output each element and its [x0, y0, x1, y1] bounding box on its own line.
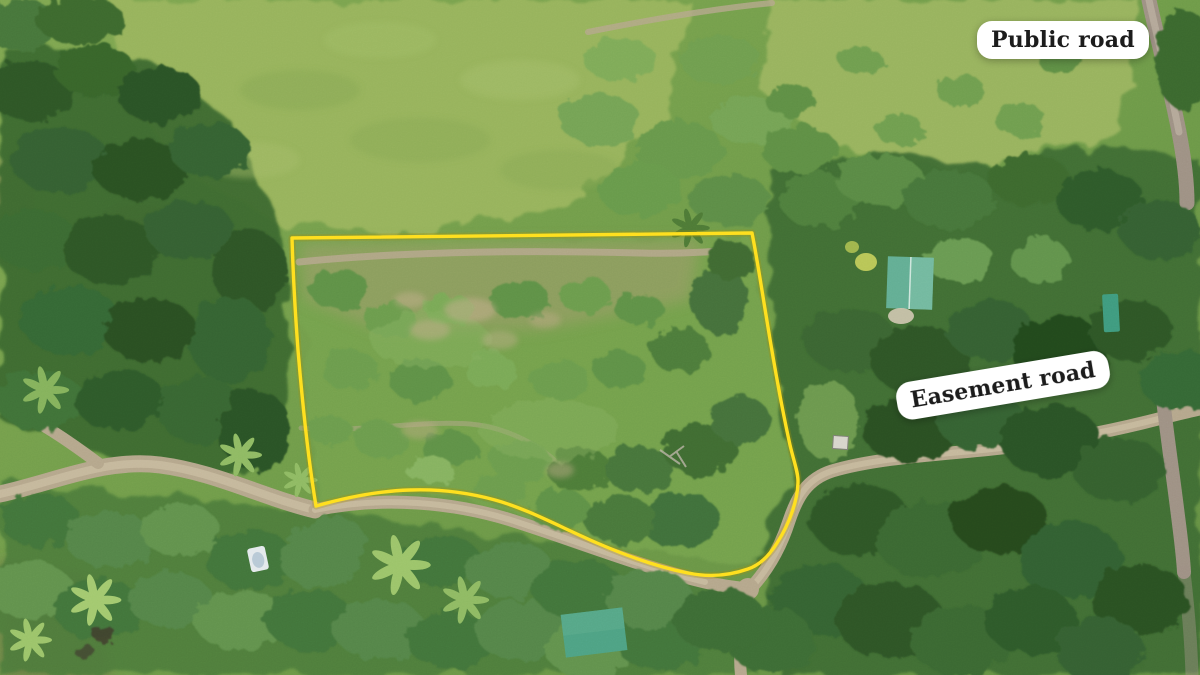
- grain-overlay: [0, 0, 1200, 675]
- public-road-label: Public road: [977, 21, 1149, 59]
- public-road-label-text: Public road: [991, 27, 1135, 53]
- aerial-property-photo: Public road Easement road: [0, 0, 1200, 675]
- aerial-photo-canvas: [0, 0, 1200, 675]
